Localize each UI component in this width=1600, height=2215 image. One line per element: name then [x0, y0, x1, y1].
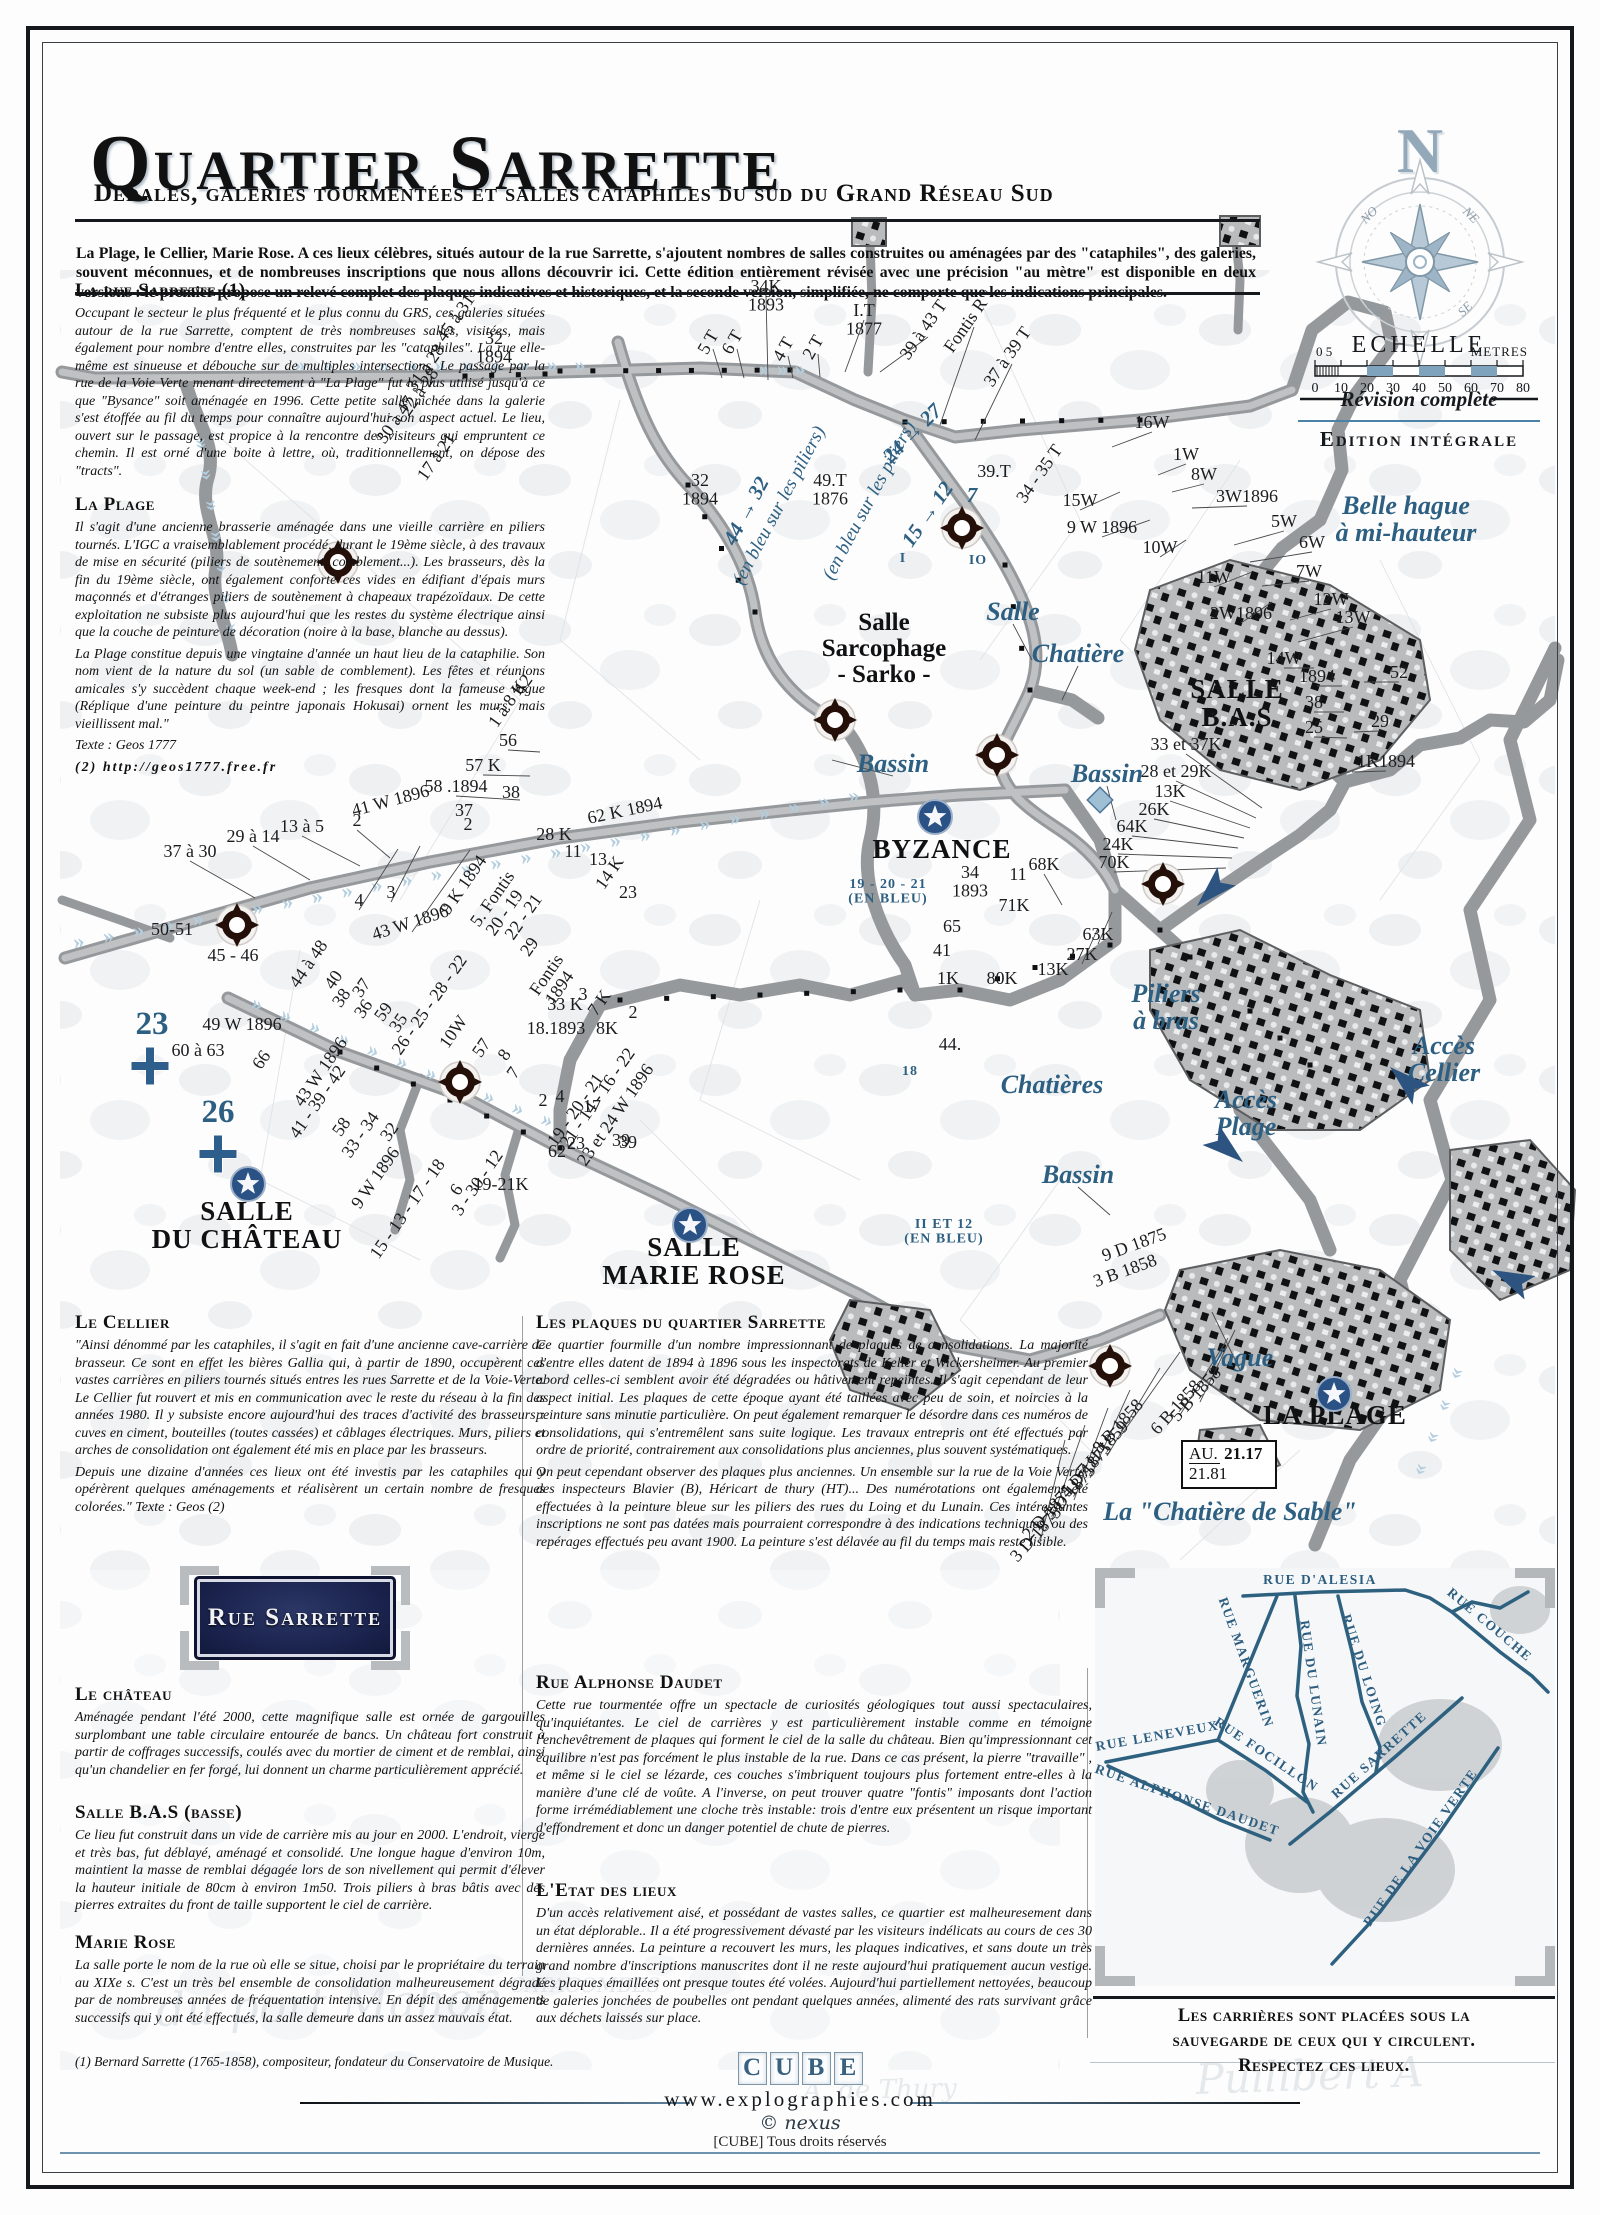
map-label: 1K1894 — [1357, 751, 1415, 771]
article-heading: Les plaques du quartier Sarrette — [536, 1312, 1088, 1334]
map-label: 2W1896 — [1210, 603, 1272, 623]
map-label: 14W — [1267, 648, 1302, 668]
inset-map: RUE D'ALESIARUE COUCHERUE MARGUERINRUE D… — [1093, 1568, 1555, 1986]
cube-logo-letter: B — [802, 2052, 831, 2085]
map-label: I — [900, 551, 906, 566]
article-art-plaques: Les plaques du quartier SarretteCe quart… — [536, 1312, 1088, 1555]
map-label: 11 — [564, 841, 581, 861]
map-label: 80K — [987, 968, 1018, 988]
map-label: 39 — [619, 1132, 637, 1152]
star-site-icon — [1317, 1377, 1351, 1411]
map-label: 7 — [967, 483, 979, 507]
plaque-text: Rue Sarrette — [208, 1604, 382, 1632]
author-credit: © nexus — [0, 2112, 1600, 2134]
map-label: 19 - 20 - 21(EN BLEU) — [848, 877, 927, 907]
map-label: 13W — [1336, 607, 1371, 627]
svg-text:»: » — [547, 352, 558, 377]
header-rule-top — [75, 219, 1260, 222]
map-label: IO — [969, 553, 987, 568]
article-art-daudet: Rue Alphonse DaudetCette rue tourmentée … — [536, 1672, 1092, 1841]
article-art-chateau: Le châteauAménagée pendant l'été 2000, c… — [75, 1684, 545, 1783]
article-paragraph: Aménagée pendant l'été 2000, cette magni… — [75, 1709, 545, 1779]
article-art-bas: Salle B.A.S (basse)Ce lieu fut construit… — [75, 1802, 545, 1919]
map-label: AccèsCellier — [1408, 1031, 1481, 1087]
map-label: 7W — [1296, 561, 1322, 581]
article-paragraph: Ce lieu fut construit dans un vide de ca… — [75, 1827, 545, 1915]
map-label: 49 W 1896 — [202, 1014, 281, 1034]
cube-logo: CUBE — [0, 2052, 1600, 2085]
map-label: 37 à 30 — [164, 841, 217, 861]
article-art-marie: Marie RoseLa salle porte le nom de la ru… — [75, 1932, 545, 2031]
map-label: 49.T1876 — [812, 470, 848, 509]
map-label: 13K — [1038, 959, 1069, 979]
article-heading: Le Cellier — [75, 1312, 545, 1334]
article-heading: L'Etat des lieux — [536, 1880, 1092, 1902]
map-label: 60 à 63 — [172, 1040, 225, 1060]
map-label: 2 — [629, 1002, 638, 1022]
map-label: 29 à 14 — [227, 826, 280, 846]
map-label: 8K — [596, 1018, 618, 1038]
article-paragraph: On peut cependant observer des plaques p… — [536, 1464, 1088, 1552]
map-label: Salle — [986, 597, 1039, 626]
copyright: [CUBE] Tous droits réservés — [0, 2134, 1600, 2151]
svg-text:»: » — [795, 356, 806, 381]
poster-page: »»»»»»»»»»»»»»»»»»»»»»»»»»»»»»»»»»»»»»»»… — [0, 0, 1600, 2215]
map-label: 64K — [1117, 816, 1148, 836]
map-label: Belle hagueà mi-hauteur — [1336, 491, 1478, 547]
map-label: 11W — [1197, 567, 1231, 587]
inset-street-label: RUE D'ALESIA — [1263, 1572, 1377, 1587]
map-label: 39.T — [977, 461, 1011, 481]
map-label: 45 - 46 — [208, 945, 259, 965]
map-label: 23 — [619, 882, 637, 902]
map-label: Vague — [1207, 1343, 1273, 1372]
map-label: 50-51 — [151, 919, 193, 939]
map-label: 4 — [355, 890, 364, 910]
article-paragraph: "Ainsi dénommé par les cataphiles, il s'… — [75, 1337, 545, 1460]
map-label: 65 — [943, 916, 961, 936]
map-label: 18 — [902, 1064, 918, 1079]
cube-logo-letter: C — [738, 2052, 767, 2085]
scale-minor-ticks: 0 5 — [1316, 344, 1332, 359]
map-label: 12W — [1314, 589, 1349, 609]
article-paragraph: Depuis une dizaine d'années ces lieux on… — [75, 1464, 545, 1517]
map-label: BYZANCE — [872, 834, 1011, 864]
scale-tick-label: 0 — [1312, 381, 1319, 396]
article-paragraph: La salle porte le nom de la rue où elle … — [75, 1957, 545, 2027]
elevation-au: AU. — [1189, 1444, 1220, 1464]
article-heading: Marie Rose — [75, 1932, 545, 1954]
cube-logo-letter: U — [770, 2052, 799, 2085]
elevation-upper: 21.17 — [1224, 1444, 1262, 1463]
map-label: 29 — [1371, 711, 1389, 731]
map-label: 1W — [1173, 444, 1199, 464]
map-label: 3 — [579, 984, 588, 1004]
map-label: 8W — [1191, 464, 1217, 484]
article-paragraph: Cette rue tourmentée offre un spectacle … — [536, 1697, 1092, 1837]
article-paragraph: Texte : Geos 1777 — [75, 737, 545, 755]
compass-north-letter: N — [1397, 115, 1443, 186]
map-label: 9 W 1896 — [1067, 517, 1137, 537]
article-heading: La rue Sarrette (1) — [75, 280, 545, 302]
map-label: 24K — [1103, 834, 1134, 854]
map-label: 18.1893 — [527, 1018, 586, 1038]
map-label: Bassin — [856, 749, 929, 778]
article-paragraph: Occupant le secteur le plus fréquenté et… — [75, 305, 545, 480]
elevation-box: AU. 21.17 21.81 — [1181, 1440, 1277, 1489]
map-label: 63K — [1083, 924, 1114, 944]
map-label: 11 — [1009, 864, 1026, 884]
article-art-etat: L'Etat des lieuxD'un accès relativement … — [536, 1880, 1092, 2032]
map-label: 52 — [1390, 662, 1408, 682]
map-label: Bassin — [1070, 759, 1143, 788]
map-label: 38 — [502, 782, 520, 802]
map-label: 23 — [136, 1006, 169, 1042]
scale-title: ECHELLE — [1352, 332, 1487, 358]
map-label: 41 — [933, 940, 951, 960]
article-paragraph: Il s'agit d'une ancienne brasserie aména… — [75, 519, 545, 642]
map-label: 15W — [1063, 490, 1098, 510]
map-label: 4 — [556, 1086, 565, 1106]
article-paragraph: Ce quartier fourmille d'un nombre impres… — [536, 1337, 1088, 1460]
map-label: 3W1896 — [1216, 486, 1278, 506]
map-label: 27K — [1067, 944, 1098, 964]
notice-rule — [1093, 1996, 1555, 1999]
map-label: II ET 12(EN BLEU) — [904, 1217, 983, 1247]
svg-text:»: » — [575, 352, 586, 377]
website-url[interactable]: www.explographies.com — [0, 2087, 1600, 2112]
article-paragraph: D'un accès relativement aisé, et posséda… — [536, 1905, 1092, 2028]
map-label: 5W — [1271, 511, 1297, 531]
footer: CUBE www.explographies.com © nexus [CUBE… — [0, 2052, 1600, 2151]
map-label: 44. — [939, 1034, 962, 1054]
article-heading: Rue Alphonse Daudet — [536, 1672, 1092, 1694]
star-site-icon — [918, 800, 952, 834]
map-label: 2 — [539, 1090, 548, 1110]
article-paragraph[interactable]: (2) http://geos1777.free.fr — [75, 759, 545, 777]
map-label: 1K — [937, 968, 959, 988]
map-label: 28 et 29K — [1141, 761, 1212, 781]
map-label: 70K — [1099, 852, 1130, 872]
revision-label: Révision complète — [1340, 387, 1498, 411]
map-label: Bassin — [1041, 1160, 1114, 1189]
scale-tick-label: 80 — [1516, 381, 1530, 396]
map-label: 10W — [1143, 537, 1178, 557]
map-label: 71K — [999, 895, 1030, 915]
map-label: 13K — [1155, 781, 1186, 801]
article-paragraph: La Plage constitue depuis une vingtaine … — [75, 646, 545, 734]
map-label: 38 — [1305, 692, 1323, 712]
map-label: La "Chatière de Sable" — [1102, 1497, 1356, 1526]
map-label: SALLEB.A.S — [1190, 674, 1284, 732]
elevation-lower: 21.81 — [1189, 1464, 1269, 1484]
map-label: 25 — [1305, 717, 1323, 737]
bottom-rule — [60, 2152, 1540, 2154]
map-label: 68K — [1029, 854, 1060, 874]
article-heading: Salle B.A.S (basse) — [75, 1802, 545, 1824]
map-label: Chatières — [1001, 1070, 1104, 1099]
edition-label: Edition intégrale — [1320, 427, 1518, 451]
map-label: 26 — [202, 1094, 235, 1130]
map-label: 1894 — [1299, 666, 1335, 686]
map-label: Chatière — [1032, 639, 1124, 668]
map-label: 13 à 5 — [280, 816, 324, 836]
article-art-plage: La PlageIl s'agit d'une ancienne brasser… — [75, 494, 545, 780]
article-art-cellier: Le Cellier"Ainsi dénommé par les cataphi… — [75, 1312, 545, 1520]
article-heading: Le château — [75, 1684, 545, 1706]
article-heading: La Plage — [75, 494, 545, 516]
map-label: 33 et 37K — [1151, 734, 1222, 754]
star-site-icon — [673, 1208, 707, 1242]
rue-sarrette-street-plaque: Rue Sarrette — [180, 1566, 410, 1670]
map-label: 3 — [387, 882, 396, 902]
article-art-rue: La rue Sarrette (1)Occupant le secteur l… — [75, 280, 545, 484]
map-label: 6W — [1299, 532, 1325, 552]
star-site-icon — [231, 1167, 265, 1201]
cube-logo-letter: E — [834, 2052, 863, 2085]
page-subtitle: Dédales, galeries tourmentées et salles … — [94, 180, 1054, 208]
map-label: 16W — [1135, 412, 1170, 432]
map-label: 2 — [464, 814, 473, 834]
map-label: Piliersà bras — [1130, 979, 1200, 1035]
scale-unit: METRES — [1471, 344, 1528, 359]
svg-text:»: » — [760, 356, 771, 381]
